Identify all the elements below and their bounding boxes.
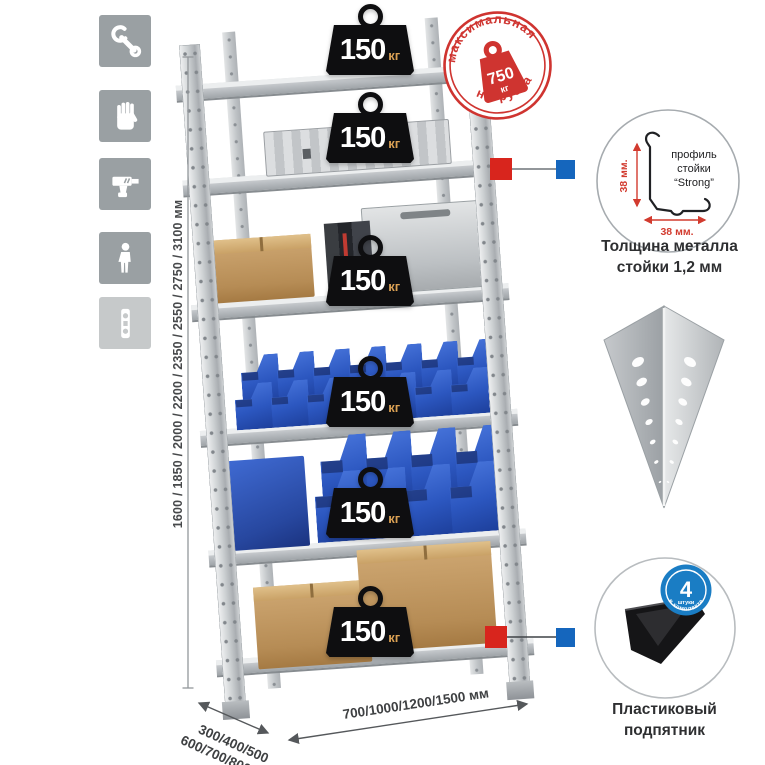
kit-count-value: 4: [680, 577, 693, 602]
profile-caption-line1: Толщина металла: [582, 237, 757, 258]
foot-marker-blue: [556, 628, 575, 647]
shelf-load-badge-6: 150кг: [315, 586, 425, 657]
kit-count-sub: штуки: [678, 600, 695, 606]
foot-caption: Пластиковый подпятник: [582, 700, 747, 742]
angle-post-image: [598, 296, 734, 516]
shelf-load-badge-2: 150кг: [315, 92, 425, 163]
profile-label-line3: “Strong”: [674, 177, 714, 189]
load-unit: кг: [388, 630, 400, 645]
profile-dim-vertical: 38 мм.: [618, 159, 630, 192]
shelf-load-badge-5: 150кг: [315, 467, 425, 538]
load-value: 150: [340, 122, 385, 155]
load-value: 150: [340, 265, 385, 298]
level-icon: [99, 297, 151, 349]
load-unit: кг: [388, 400, 400, 415]
person-icon: [99, 232, 151, 284]
blue-crate: [228, 456, 310, 551]
profile-marker-blue: [556, 160, 575, 179]
load-unit: кг: [388, 136, 400, 151]
profile-label-line2: стойки: [677, 163, 711, 175]
profile-caption-line2: стойки 1,2 мм: [582, 258, 757, 279]
wrench-icon: [99, 15, 151, 67]
load-unit: кг: [388, 511, 400, 526]
load-unit: кг: [388, 48, 400, 63]
load-value: 150: [340, 386, 385, 419]
height-options-label: 1600 / 1850 / 2000 / 2200 / 2350 / 2550 …: [171, 154, 185, 574]
drill-icon: [99, 158, 151, 210]
cardboard-box-small: [209, 234, 315, 304]
rack-foot-left: [222, 700, 250, 720]
load-unit: кг: [388, 279, 400, 294]
gloves-icon: [99, 90, 151, 142]
load-value: 150: [340, 34, 385, 67]
load-value: 150: [340, 497, 385, 530]
profile-label-line1: профиль: [671, 149, 717, 161]
kit-count-badge: 4 штуки в комплекте: [661, 565, 712, 616]
plastic-foot-circle: 4 штуки в комплекте: [591, 554, 739, 702]
shelf-load-badge-3: 150кг: [315, 235, 425, 306]
profile-marker-red: [490, 158, 512, 180]
foot-marker-red: [485, 626, 507, 648]
load-value: 150: [340, 616, 385, 649]
profile-detail-circle: 38 мм. 38 мм. профиль стойки “Strong”: [593, 106, 743, 256]
max-load-stamp: максимальная нагрузка 750 кг: [441, 9, 554, 122]
shelving-infographic: 1600 / 1850 / 2000 / 2200 / 2350 / 2550 …: [0, 0, 765, 765]
foot-caption-line2: подпятник: [582, 721, 747, 742]
profile-caption: Толщина металла стойки 1,2 мм: [582, 237, 757, 279]
foot-caption-line1: Пластиковый: [582, 700, 747, 721]
shelf-load-badge-4: 150кг: [315, 356, 425, 427]
shelf-load-badge-1: 150кг: [315, 4, 425, 75]
